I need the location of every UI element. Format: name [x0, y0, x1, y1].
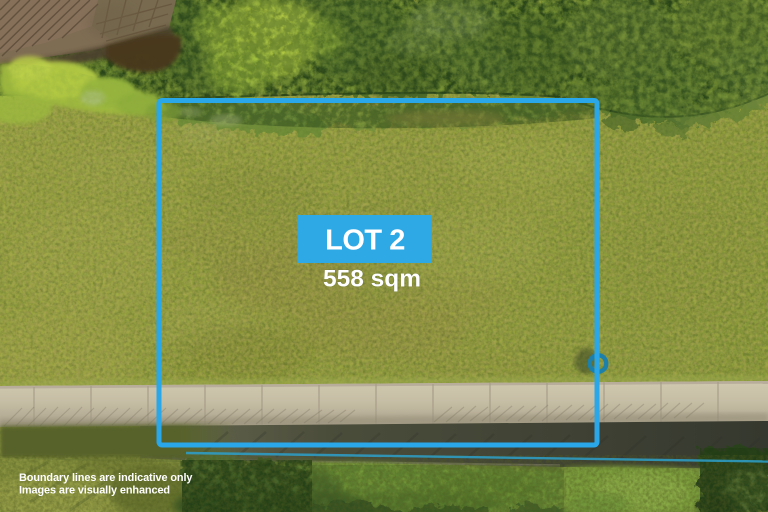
svg-text:558 sqm: 558 sqm [323, 266, 421, 293]
svg-text:Boundary lines are indicative: Boundary lines are indicative only [19, 472, 192, 484]
svg-text:LOT 2: LOT 2 [325, 225, 405, 257]
svg-text:Images are visually enhanced: Images are visually enhanced [19, 485, 170, 497]
